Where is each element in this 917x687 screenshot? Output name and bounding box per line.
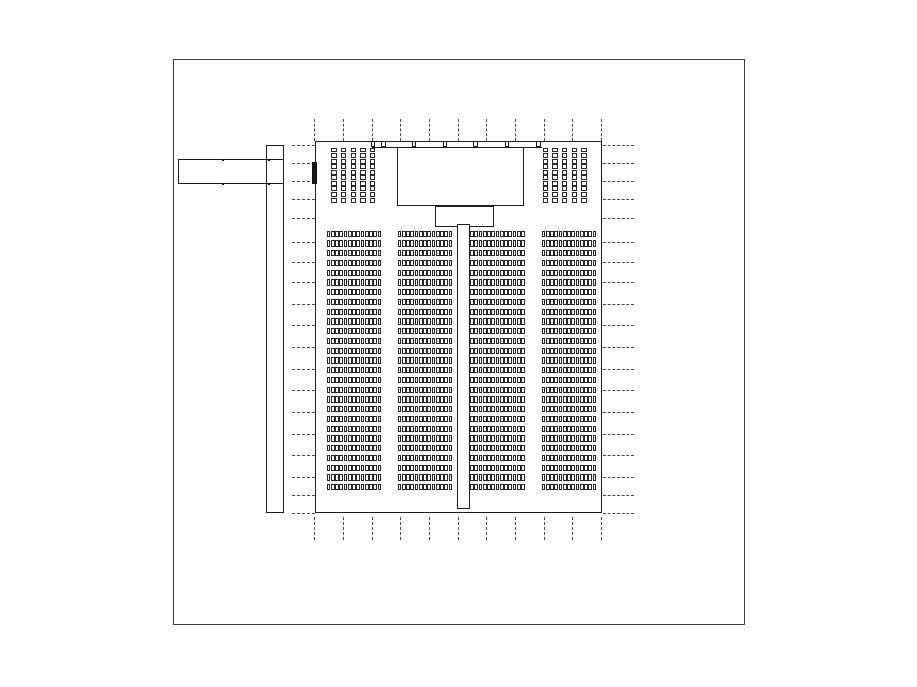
seat xyxy=(521,426,525,432)
seat xyxy=(500,328,504,334)
seat xyxy=(356,445,360,451)
side-seat-column-group1 xyxy=(370,148,375,203)
seat xyxy=(576,396,580,402)
seat xyxy=(419,289,423,295)
seat xyxy=(500,377,504,383)
seat xyxy=(470,484,474,490)
seat xyxy=(550,318,554,324)
seat xyxy=(331,181,336,186)
seat xyxy=(331,474,335,480)
seat xyxy=(559,445,563,451)
seat xyxy=(550,484,554,490)
seat xyxy=(571,299,575,305)
seat-row-block2 xyxy=(398,396,453,402)
seat xyxy=(513,279,517,285)
seat xyxy=(369,435,373,441)
seat xyxy=(432,465,436,471)
seat xyxy=(440,435,444,441)
seat xyxy=(432,387,436,393)
seat xyxy=(365,299,369,305)
seat xyxy=(331,435,335,441)
seat xyxy=(487,328,491,334)
seat xyxy=(348,396,352,402)
seat xyxy=(427,416,431,422)
seat xyxy=(517,484,521,490)
seat xyxy=(508,426,512,432)
seat xyxy=(563,309,567,315)
seat xyxy=(432,279,436,285)
seat xyxy=(356,231,360,237)
seat xyxy=(554,231,558,237)
seat xyxy=(504,367,508,373)
seat xyxy=(398,279,402,285)
seat xyxy=(373,328,377,334)
seat xyxy=(576,367,580,373)
seat xyxy=(500,445,504,451)
seat xyxy=(546,231,550,237)
seat xyxy=(491,435,495,441)
seat xyxy=(479,426,483,432)
seat xyxy=(352,270,356,276)
seat-row-block3 xyxy=(470,484,525,490)
seat xyxy=(348,445,352,451)
seat xyxy=(327,474,331,480)
seat xyxy=(562,159,567,164)
seat xyxy=(361,426,365,432)
seat xyxy=(365,250,369,256)
seat xyxy=(373,377,377,383)
seat xyxy=(479,231,483,237)
seat xyxy=(470,309,474,315)
seat xyxy=(474,348,478,354)
seat xyxy=(327,484,331,490)
seat xyxy=(567,338,571,344)
stage xyxy=(397,147,524,206)
seat xyxy=(546,465,550,471)
seat xyxy=(593,484,597,490)
seat xyxy=(423,318,427,324)
seat xyxy=(521,338,525,344)
seat xyxy=(572,181,577,186)
seat xyxy=(571,270,575,276)
seat xyxy=(415,240,419,246)
seat xyxy=(576,474,580,480)
seat xyxy=(474,318,478,324)
seat xyxy=(479,279,483,285)
seat xyxy=(576,348,580,354)
seat xyxy=(365,377,369,383)
seat xyxy=(398,387,402,393)
seat xyxy=(402,279,406,285)
seat xyxy=(361,309,365,315)
seat xyxy=(513,396,517,402)
seat xyxy=(496,396,500,402)
seat xyxy=(496,377,500,383)
seat-row-block4 xyxy=(542,270,597,276)
seat-row-block1 xyxy=(327,465,382,471)
seat xyxy=(580,299,584,305)
seat xyxy=(483,309,487,315)
seat-row-block4 xyxy=(542,309,597,315)
seat xyxy=(521,387,525,393)
seat xyxy=(580,309,584,315)
seat xyxy=(576,465,580,471)
seat xyxy=(415,426,419,432)
seat xyxy=(576,416,580,422)
seat xyxy=(398,357,402,363)
seat xyxy=(365,455,369,461)
seat xyxy=(546,309,550,315)
seat xyxy=(361,250,365,256)
seat xyxy=(423,357,427,363)
seat-row-block3 xyxy=(470,270,525,276)
seat xyxy=(348,309,352,315)
seat xyxy=(398,367,402,373)
seat xyxy=(415,357,419,363)
seat xyxy=(593,426,597,432)
seat xyxy=(402,435,406,441)
seat xyxy=(378,348,382,354)
seat xyxy=(559,377,563,383)
seat xyxy=(521,474,525,480)
seat xyxy=(483,270,487,276)
seat xyxy=(440,455,444,461)
seat xyxy=(517,348,521,354)
seat xyxy=(402,328,406,334)
seat xyxy=(373,406,377,412)
seat xyxy=(327,367,331,373)
seat xyxy=(449,426,453,432)
seat-row-block1 xyxy=(327,387,382,393)
seat xyxy=(339,445,343,451)
seat xyxy=(543,198,548,203)
seat xyxy=(348,318,352,324)
seat xyxy=(398,270,402,276)
seat xyxy=(593,270,597,276)
seat xyxy=(513,328,517,334)
seat-row-block2 xyxy=(398,474,453,480)
seat xyxy=(432,250,436,256)
seat xyxy=(496,406,500,412)
seat xyxy=(440,270,444,276)
seat xyxy=(378,299,382,305)
seat xyxy=(352,357,356,363)
seat xyxy=(440,348,444,354)
seat xyxy=(580,348,584,354)
seat xyxy=(517,299,521,305)
seat xyxy=(559,348,563,354)
seat xyxy=(508,309,512,315)
seat xyxy=(444,396,448,402)
seat xyxy=(427,338,431,344)
seat xyxy=(567,250,571,256)
seat xyxy=(542,426,546,432)
seat xyxy=(365,445,369,451)
seat xyxy=(504,406,508,412)
seat-row-block2 xyxy=(398,377,453,383)
seat-row-block2 xyxy=(398,367,453,373)
seat xyxy=(369,231,373,237)
seat xyxy=(406,465,410,471)
floor-plan xyxy=(0,0,917,687)
seat xyxy=(508,484,512,490)
seat xyxy=(370,164,375,169)
seat xyxy=(402,445,406,451)
seat xyxy=(580,367,584,373)
seat xyxy=(576,426,580,432)
seat xyxy=(410,455,414,461)
seat xyxy=(415,465,419,471)
rail-post xyxy=(473,141,478,147)
seat xyxy=(491,455,495,461)
seat xyxy=(427,231,431,237)
seat xyxy=(339,309,343,315)
seat xyxy=(593,367,597,373)
seat xyxy=(378,328,382,334)
seat xyxy=(542,328,546,334)
seat xyxy=(500,455,504,461)
seat xyxy=(369,299,373,305)
seat xyxy=(348,465,352,471)
seat xyxy=(496,309,500,315)
seat xyxy=(398,289,402,295)
seat xyxy=(500,279,504,285)
seat xyxy=(398,406,402,412)
seat xyxy=(339,455,343,461)
seat xyxy=(449,474,453,480)
seat xyxy=(580,387,584,393)
seat xyxy=(474,465,478,471)
seat xyxy=(406,328,410,334)
seat xyxy=(559,387,563,393)
seat xyxy=(402,426,406,432)
seat xyxy=(373,474,377,480)
seat xyxy=(449,289,453,295)
seat xyxy=(563,289,567,295)
seat xyxy=(335,387,339,393)
seat xyxy=(327,435,331,441)
seat xyxy=(339,367,343,373)
seat xyxy=(356,396,360,402)
seat xyxy=(508,474,512,480)
seat xyxy=(373,445,377,451)
seat xyxy=(351,198,356,203)
seat xyxy=(483,474,487,480)
seat xyxy=(571,279,575,285)
seat xyxy=(491,474,495,480)
seat xyxy=(580,445,584,451)
seat xyxy=(550,367,554,373)
seat xyxy=(563,474,567,480)
seat xyxy=(348,426,352,432)
seat xyxy=(513,348,517,354)
seat xyxy=(513,435,517,441)
seat xyxy=(427,357,431,363)
seat xyxy=(423,416,427,422)
seat xyxy=(369,289,373,295)
seat xyxy=(449,231,453,237)
seat xyxy=(487,474,491,480)
seat-row-block1 xyxy=(327,318,382,324)
seat xyxy=(449,416,453,422)
seat xyxy=(542,270,546,276)
seat xyxy=(474,299,478,305)
seat xyxy=(410,318,414,324)
seat xyxy=(584,357,588,363)
seat xyxy=(521,367,525,373)
seat xyxy=(352,240,356,246)
seat-row-block1 xyxy=(327,328,382,334)
seat xyxy=(398,299,402,305)
seat xyxy=(415,309,419,315)
seat xyxy=(571,240,575,246)
seat xyxy=(369,338,373,344)
seat xyxy=(500,474,504,480)
seat xyxy=(348,240,352,246)
seat xyxy=(550,299,554,305)
seat xyxy=(419,231,423,237)
seat xyxy=(331,328,335,334)
seat xyxy=(378,250,382,256)
seat xyxy=(567,231,571,237)
seat xyxy=(593,357,597,363)
seat xyxy=(483,465,487,471)
seat xyxy=(327,328,331,334)
seat xyxy=(335,416,339,422)
seat xyxy=(513,377,517,383)
seat xyxy=(356,260,360,266)
seat xyxy=(543,170,548,175)
seat xyxy=(593,416,597,422)
seat-row-block4 xyxy=(542,250,597,256)
seat xyxy=(572,148,577,153)
seat xyxy=(352,455,356,461)
seat xyxy=(423,474,427,480)
seat xyxy=(339,396,343,402)
seat xyxy=(335,474,339,480)
seat xyxy=(546,416,550,422)
seat xyxy=(559,338,563,344)
seat xyxy=(554,387,558,393)
seat xyxy=(593,279,597,285)
seat xyxy=(427,435,431,441)
seat xyxy=(427,260,431,266)
seat xyxy=(567,416,571,422)
seat xyxy=(365,240,369,246)
seat xyxy=(331,387,335,393)
seat xyxy=(584,279,588,285)
seat xyxy=(508,357,512,363)
seat xyxy=(423,279,427,285)
seat xyxy=(419,279,423,285)
seat xyxy=(335,406,339,412)
seat-row-block3 xyxy=(470,455,525,461)
seat xyxy=(552,175,557,180)
seat xyxy=(423,484,427,490)
seat-row-block3 xyxy=(470,377,525,383)
seat xyxy=(348,348,352,354)
seat xyxy=(559,328,563,334)
seat xyxy=(567,387,571,393)
seat xyxy=(567,484,571,490)
seat xyxy=(470,367,474,373)
seat xyxy=(402,474,406,480)
seat xyxy=(331,348,335,354)
seat xyxy=(365,416,369,422)
seat xyxy=(576,240,580,246)
seat xyxy=(567,377,571,383)
seat xyxy=(588,435,592,441)
seat xyxy=(365,231,369,237)
seat xyxy=(373,416,377,422)
seat xyxy=(449,465,453,471)
seat xyxy=(567,240,571,246)
seat xyxy=(361,348,365,354)
seat xyxy=(378,445,382,451)
seat xyxy=(543,181,548,186)
seat xyxy=(517,309,521,315)
seat xyxy=(543,186,548,191)
seat xyxy=(373,250,377,256)
seat xyxy=(584,416,588,422)
seat xyxy=(483,387,487,393)
seat xyxy=(576,289,580,295)
seat xyxy=(436,309,440,315)
seat xyxy=(327,465,331,471)
seat-row-block4 xyxy=(542,387,597,393)
seat xyxy=(348,367,352,373)
seat xyxy=(504,387,508,393)
seat xyxy=(356,484,360,490)
seat xyxy=(406,396,410,402)
seat xyxy=(402,406,406,412)
seat xyxy=(369,387,373,393)
seat xyxy=(361,357,365,363)
seat xyxy=(398,231,402,237)
seat xyxy=(470,357,474,363)
seat xyxy=(440,318,444,324)
seat xyxy=(335,309,339,315)
seat xyxy=(542,465,546,471)
seat xyxy=(369,455,373,461)
seat xyxy=(588,279,592,285)
seat-row-block3 xyxy=(470,396,525,402)
seat xyxy=(436,328,440,334)
seat xyxy=(331,279,335,285)
side-seat-column-group2 xyxy=(572,148,577,203)
seat xyxy=(331,318,335,324)
seat xyxy=(580,250,584,256)
seat xyxy=(341,192,346,197)
seat xyxy=(517,250,521,256)
seat xyxy=(356,328,360,334)
seat xyxy=(373,426,377,432)
seat xyxy=(339,465,343,471)
seat xyxy=(552,164,557,169)
seat xyxy=(483,231,487,237)
seat xyxy=(444,299,448,305)
seat xyxy=(543,153,548,158)
seat xyxy=(580,377,584,383)
seat xyxy=(563,260,567,266)
seat xyxy=(369,260,373,266)
seat xyxy=(356,367,360,373)
seat xyxy=(576,250,580,256)
seat xyxy=(369,348,373,354)
seat xyxy=(491,299,495,305)
seat-row-block3 xyxy=(470,357,525,363)
seat-row-block3 xyxy=(470,279,525,285)
